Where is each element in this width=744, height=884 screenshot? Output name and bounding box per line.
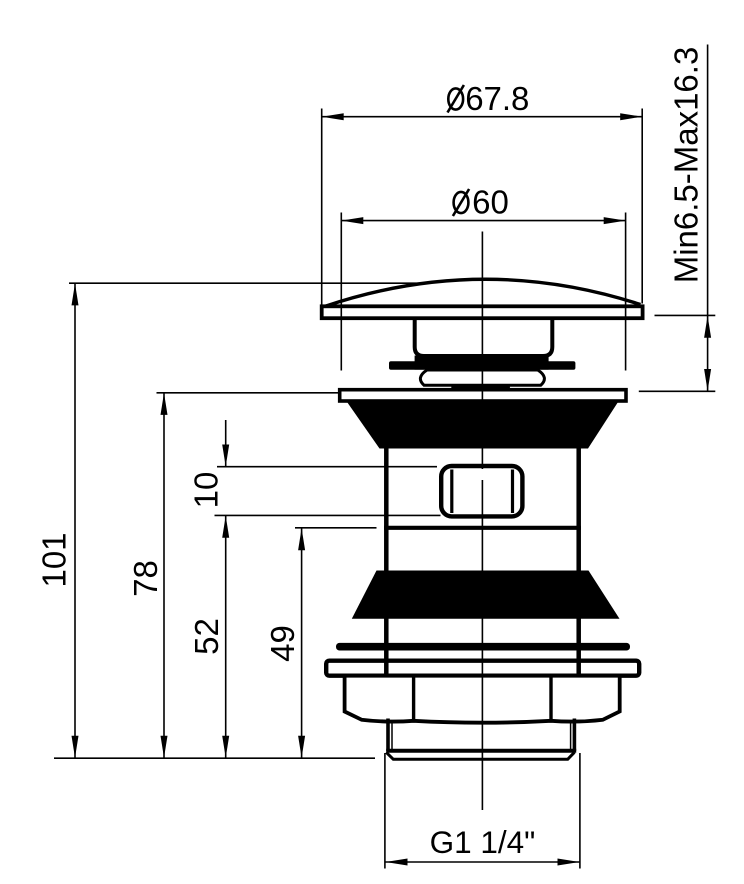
svg-text:60: 60 (472, 184, 509, 221)
svg-text:78: 78 (127, 560, 164, 597)
svg-text:49: 49 (264, 625, 301, 662)
svg-text:101: 101 (36, 532, 73, 587)
svg-text:10: 10 (188, 472, 225, 509)
svg-text:67.8: 67.8 (465, 80, 529, 117)
svg-text:Min6.5-Max16.3: Min6.5-Max16.3 (668, 47, 705, 284)
svg-text:G1 1/4": G1 1/4" (430, 824, 536, 860)
svg-text:52: 52 (188, 618, 225, 655)
